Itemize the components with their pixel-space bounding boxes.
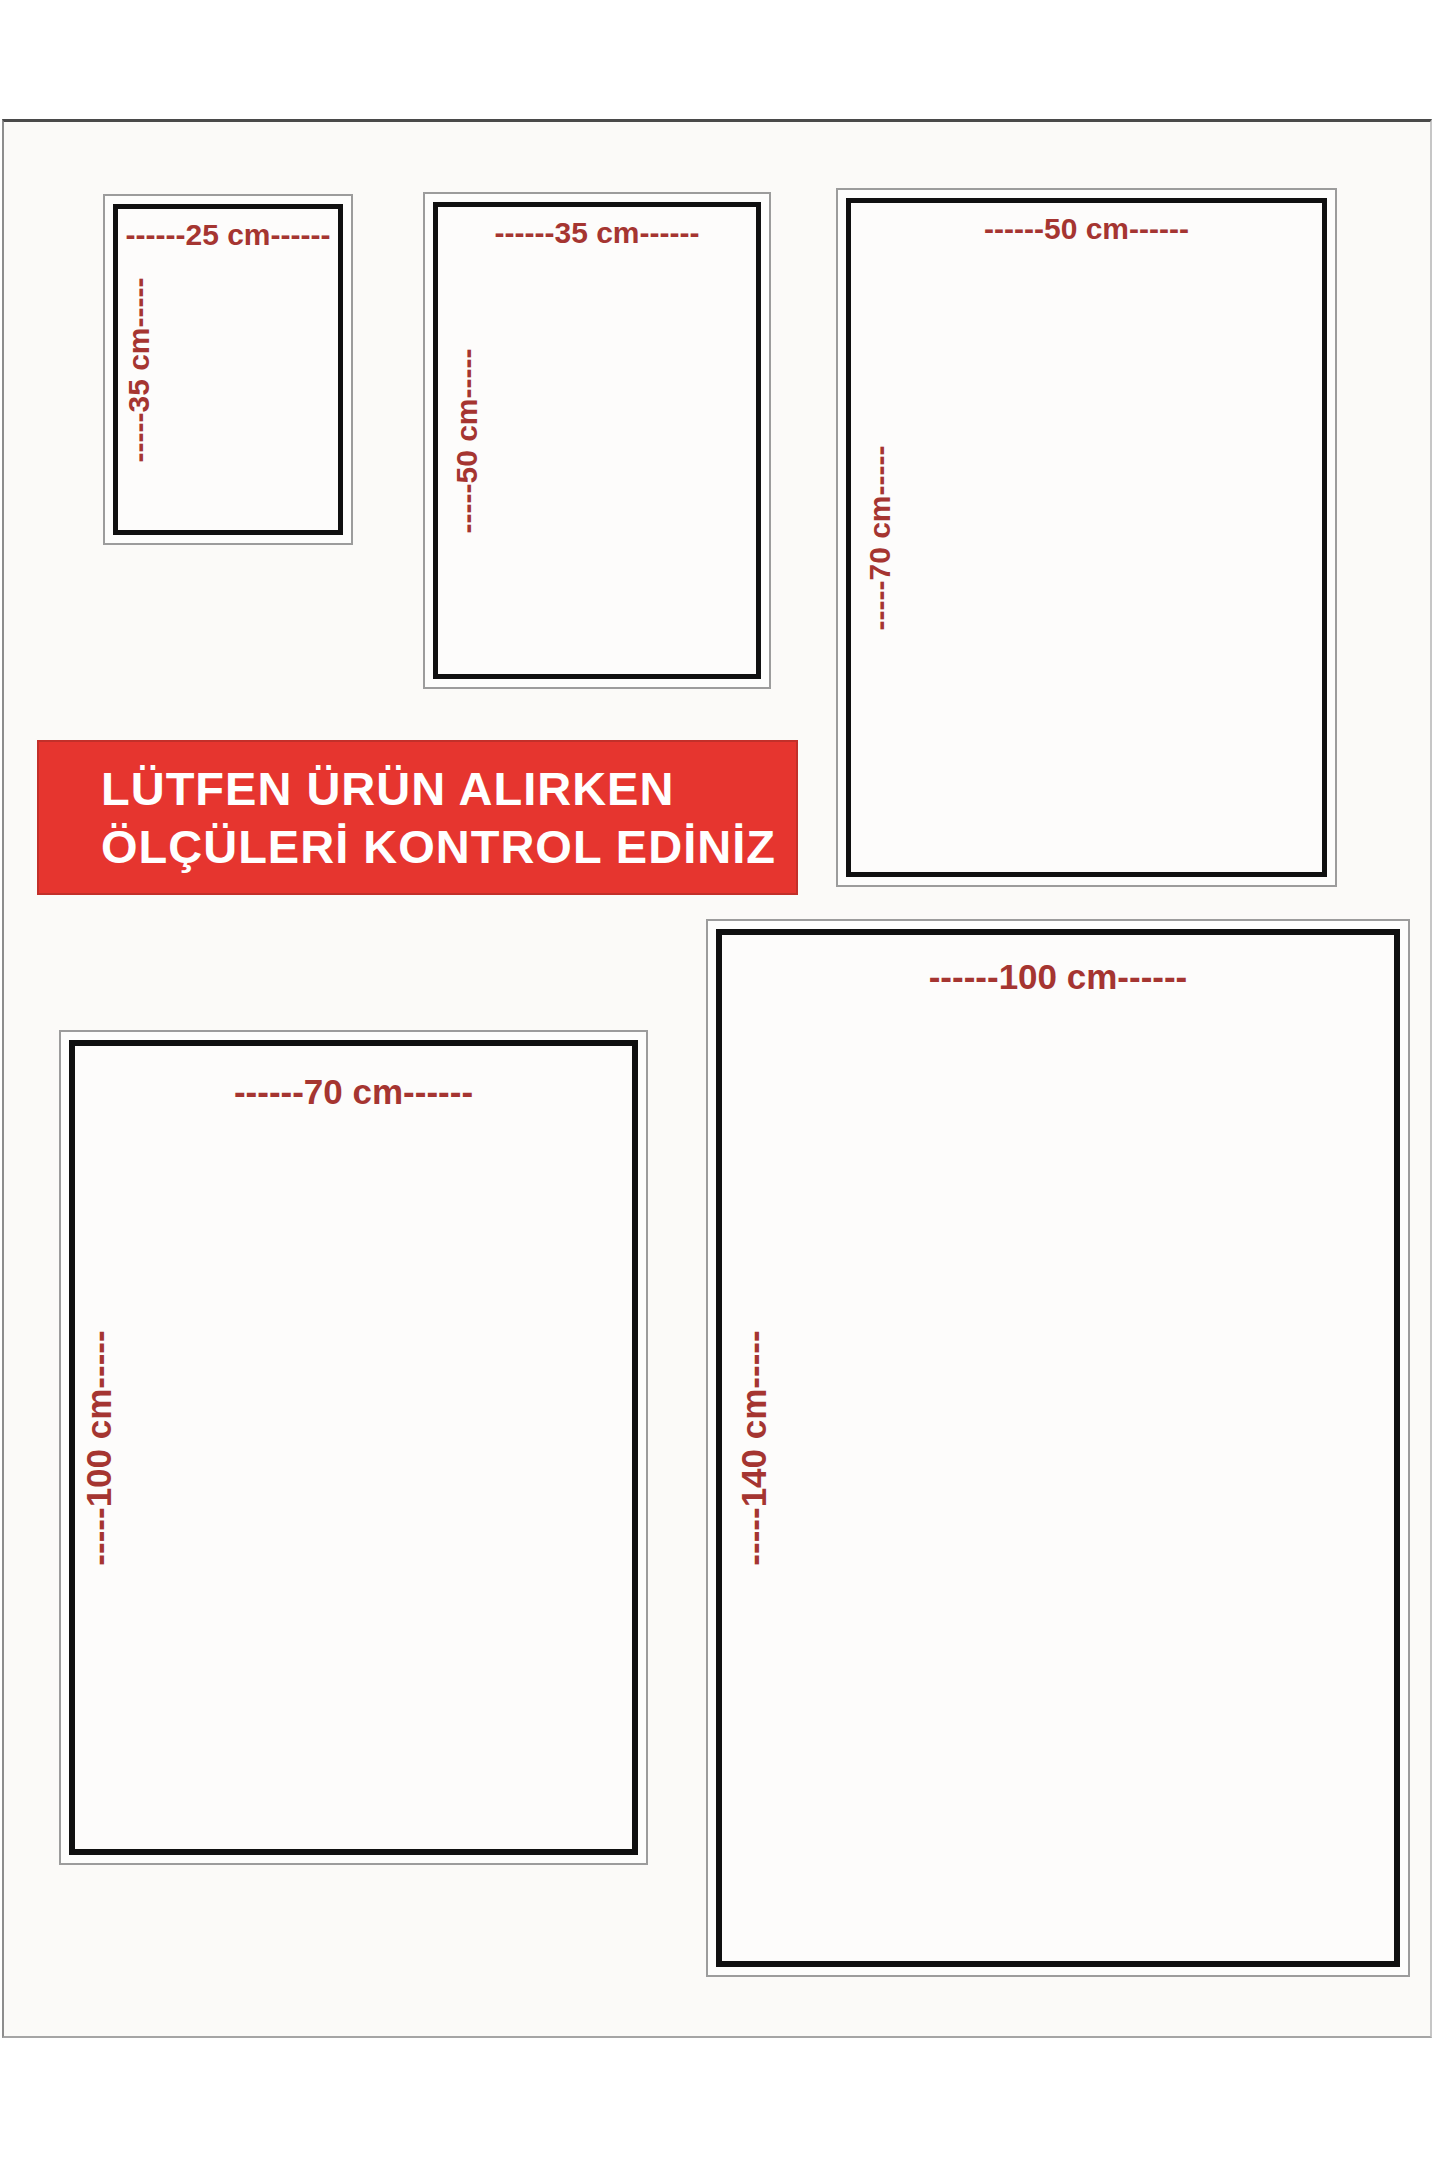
height-dimension-label: -----50 cm----- [450, 348, 484, 533]
size-diagram-70x100: ------70 cm------ -----100 cm----- [59, 1030, 648, 1865]
size-diagram-100x140: ------100 cm------ -----140 cm----- [706, 919, 1410, 1977]
width-dimension-label: ------100 cm------ [708, 957, 1408, 997]
width-dimension-label: ------50 cm------ [838, 212, 1335, 246]
warning-banner-line-2: ÖLÇÜLERİ KONTROL EDİNİZ [101, 818, 796, 876]
height-dimension-label: -----70 cm----- [863, 445, 897, 630]
warning-banner-line-1: LÜTFEN ÜRÜN ALIRKEN [101, 760, 796, 818]
warning-banner: LÜTFEN ÜRÜN ALIRKEN ÖLÇÜLERİ KONTROL EDİ… [37, 740, 798, 895]
size-diagram-35x50: ------35 cm------ -----50 cm----- [423, 192, 771, 689]
size-diagram-50x70: ------50 cm------ -----70 cm----- [836, 188, 1337, 887]
width-dimension-label: ------70 cm------ [61, 1072, 646, 1112]
size-guide-image: ------25 cm------ -----35 cm----- ------… [0, 0, 1440, 2160]
height-dimension-label: -----140 cm----- [734, 1330, 774, 1565]
width-dimension-label: ------25 cm------ [105, 218, 351, 252]
inner-frame [716, 929, 1400, 1967]
width-dimension-label: ------35 cm------ [425, 216, 769, 250]
inner-frame [846, 198, 1327, 877]
inner-frame [69, 1040, 638, 1855]
height-dimension-label: -----35 cm----- [122, 277, 156, 462]
height-dimension-label: -----100 cm----- [79, 1330, 119, 1565]
size-diagram-25x35: ------25 cm------ -----35 cm----- [103, 194, 353, 545]
